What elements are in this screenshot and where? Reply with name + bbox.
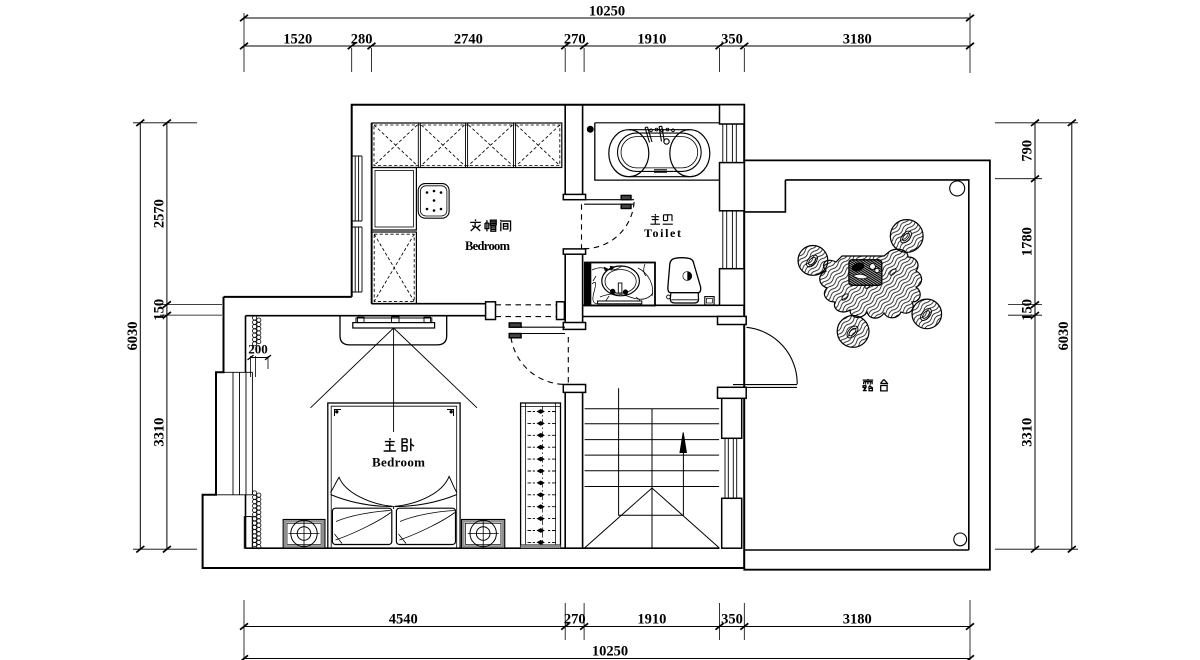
- svg-text:3180: 3180: [843, 612, 872, 628]
- svg-text:1910: 1910: [637, 32, 666, 48]
- svg-text:3180: 3180: [843, 32, 872, 48]
- svg-text:Bedroom: Bedroom: [465, 239, 511, 253]
- svg-text:350: 350: [721, 612, 743, 628]
- svg-text:2570: 2570: [152, 199, 168, 228]
- svg-text:150: 150: [1020, 299, 1036, 321]
- svg-text:1780: 1780: [1020, 227, 1036, 256]
- svg-text:1520: 1520: [283, 32, 312, 48]
- svg-text:10250: 10250: [592, 644, 628, 660]
- svg-text:2740: 2740: [454, 32, 483, 48]
- svg-text:350: 350: [721, 32, 743, 48]
- svg-text:6030: 6030: [1056, 322, 1072, 351]
- svg-text:3310: 3310: [1020, 418, 1036, 447]
- svg-text:10250: 10250: [589, 4, 625, 20]
- svg-text:3310: 3310: [152, 418, 168, 447]
- svg-text:150: 150: [152, 299, 168, 321]
- svg-text:Bedroom: Bedroom: [372, 455, 425, 470]
- svg-text:280: 280: [351, 32, 373, 48]
- svg-text:270: 270: [564, 32, 586, 48]
- svg-text:270: 270: [564, 612, 586, 628]
- svg-text:790: 790: [1020, 140, 1036, 162]
- svg-text:4540: 4540: [389, 612, 418, 628]
- svg-text:6030: 6030: [125, 322, 141, 351]
- svg-text:1910: 1910: [637, 612, 666, 628]
